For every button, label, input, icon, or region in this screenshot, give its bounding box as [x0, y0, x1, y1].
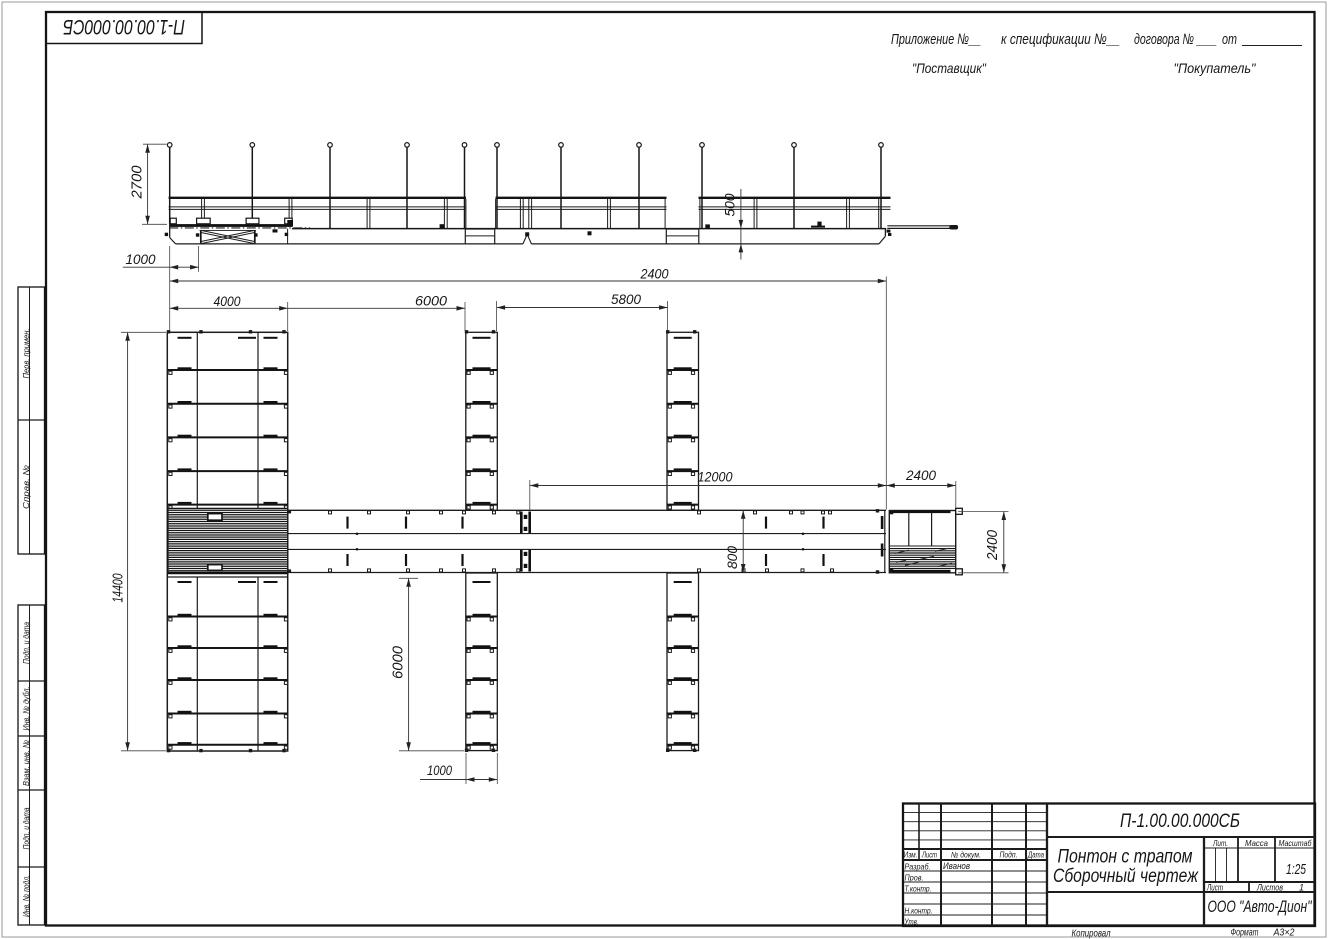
svg-text:Инв. № подл.: Инв. № подл. — [21, 875, 31, 917]
svg-text:2400: 2400 — [640, 266, 669, 282]
svg-text:1: 1 — [1299, 882, 1304, 892]
svg-text:Понтон с трапом: Понтон с трапом — [1058, 847, 1193, 868]
svg-text:"Поставщик": "Поставщик" — [912, 60, 987, 76]
svg-text:6000: 6000 — [391, 646, 407, 679]
svg-text:Листов: Листов — [1256, 882, 1283, 892]
svg-text:2700: 2700 — [130, 166, 146, 200]
svg-text:П-1.00.00.000СБ: П-1.00.00.000СБ — [1120, 810, 1240, 832]
svg-text:Формат: Формат — [1231, 928, 1259, 939]
svg-text:договора №: договора № — [1134, 31, 1194, 48]
svg-text:Копировал: Копировал — [1072, 929, 1111, 939]
svg-text:Т.контр.: Т.контр. — [905, 884, 932, 894]
svg-text:Иванов: Иванов — [943, 861, 970, 871]
svg-text:Н.контр.: Н.контр. — [905, 906, 933, 916]
svg-text:1000: 1000 — [427, 762, 452, 778]
svg-text:Сборочный чертеж: Сборочный чертеж — [1053, 866, 1199, 887]
svg-text:А3×2: А3×2 — [1273, 928, 1295, 939]
svg-text:___: ___ — [1195, 31, 1217, 48]
svg-text:Пров.: Пров. — [905, 873, 924, 883]
svg-text:Подп. и дата: Подп. и дата — [21, 807, 31, 849]
svg-text:Дата: Дата — [1027, 851, 1044, 860]
svg-text:"Покупатель": "Покупатель" — [1174, 60, 1257, 76]
svg-text:14400: 14400 — [111, 574, 127, 603]
svg-text:1000: 1000 — [126, 251, 156, 267]
svg-text:4000: 4000 — [214, 293, 241, 309]
svg-text:№ докум.: № докум. — [951, 851, 981, 860]
svg-text:Лист: Лист — [921, 851, 937, 860]
svg-text:Масштаб: Масштаб — [1279, 838, 1313, 848]
svg-text:Инв. № дубл.: Инв. № дубл. — [21, 687, 31, 731]
svg-text:5800: 5800 — [611, 291, 641, 307]
svg-text:Подп. и дата: Подп. и дата — [21, 622, 31, 664]
svg-text:1:25: 1:25 — [1286, 861, 1306, 878]
svg-text:500: 500 — [723, 193, 738, 216]
svg-text:Лист: Лист — [1206, 882, 1223, 892]
svg-text:6000: 6000 — [415, 293, 447, 309]
svg-text:2400: 2400 — [905, 467, 936, 483]
svg-text:Подп.: Подп. — [1000, 851, 1018, 860]
svg-text:Справ. №: Справ. № — [21, 465, 31, 509]
svg-text:Взам. инв. №: Взам. инв. № — [21, 740, 31, 786]
svg-text:от: от — [1222, 31, 1237, 48]
svg-text:Приложение №__: Приложение №__ — [891, 31, 981, 48]
svg-text:Лит.: Лит. — [1212, 838, 1228, 848]
svg-text:2400: 2400 — [985, 530, 1001, 561]
svg-text:к спецификации №__: к спецификации №__ — [1001, 31, 1120, 48]
svg-text:Утв.: Утв. — [904, 916, 919, 926]
svg-text:Масса: Масса — [1245, 838, 1268, 848]
svg-text:ООО "Авто-Дион": ООО "Авто-Дион" — [1208, 898, 1313, 916]
svg-text:П-1.00.00.000СБ: П-1.00.00.000СБ — [63, 15, 185, 38]
svg-text:Разраб.: Разраб. — [905, 862, 931, 872]
svg-text:Изм.: Изм. — [904, 851, 918, 860]
svg-text:Перв. примен.: Перв. примен. — [21, 329, 31, 379]
svg-text:12000: 12000 — [698, 469, 733, 485]
svg-text:800: 800 — [725, 546, 740, 569]
